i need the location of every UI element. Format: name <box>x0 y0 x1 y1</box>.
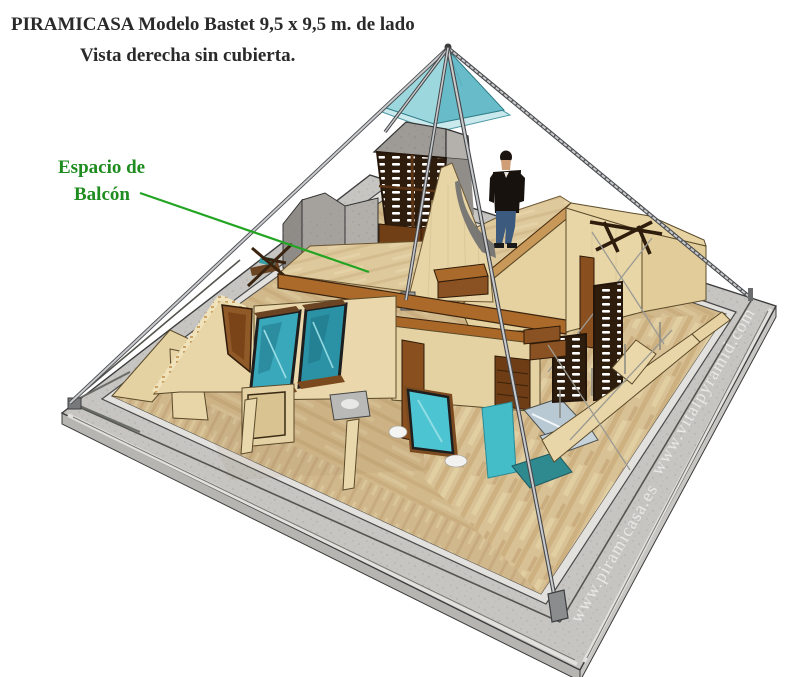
svg-text:Espacio de: Espacio de <box>58 157 145 178</box>
svg-text:PIRAMICASA Modelo Bastet 9,5 x: PIRAMICASA Modelo Bastet 9,5 x 9,5 m. de… <box>11 14 415 35</box>
svg-text:Balcón: Balcón <box>74 184 130 205</box>
svg-text:Vista derecha sin cubierta.: Vista derecha sin cubierta. <box>80 45 295 66</box>
